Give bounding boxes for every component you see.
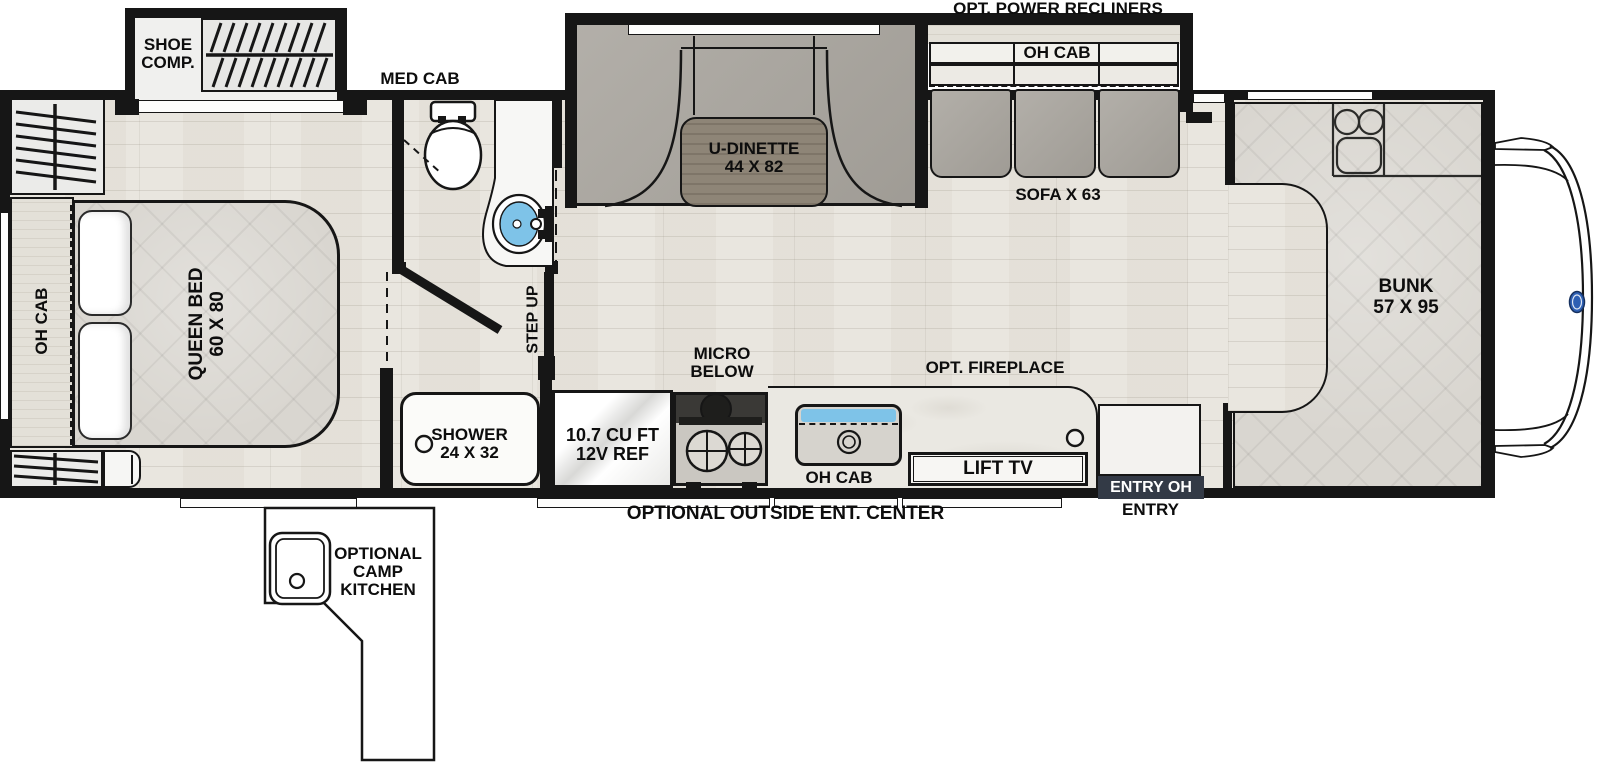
label-u-dinette: U-DINETTE 44 X 82 — [681, 140, 827, 176]
label-lift-tv: LIFT TV — [913, 456, 1083, 482]
label-kitchen-oh-cab: OH CAB — [795, 469, 883, 487]
label-bunk-name: BUNK — [1345, 277, 1467, 298]
label-shower-name: SHOWER — [412, 426, 527, 444]
label-queen-bed-size: 60 X 80 — [208, 259, 229, 389]
label-queen-bed: QUEEN BED 60 X 80 — [187, 259, 229, 389]
label-step-up: STEP UP — [524, 280, 541, 360]
label-sofa-oh-cab: OH CAB — [1017, 44, 1097, 62]
label-camp-line2: CAMP — [320, 563, 436, 581]
bath-door-leaf — [402, 270, 500, 330]
label-micro-line1: MICRO — [667, 345, 777, 363]
label-entry-oh: ENTRY OH — [1098, 479, 1204, 496]
dinette-bench-outline — [605, 36, 902, 206]
label-shower-size: 24 X 32 — [412, 444, 527, 462]
label-fridge-line2: 12V REF — [553, 445, 672, 464]
label-queen-bed-name: QUEEN BED — [187, 259, 208, 389]
label-outside-ent-center: OPTIONAL OUTSIDE ENT. CENTER — [598, 504, 973, 524]
range-burners-icon — [679, 394, 762, 489]
shoe-wardrobe-rod-icon — [206, 23, 333, 87]
label-u-dinette-size: 44 X 82 — [681, 158, 827, 176]
label-camp-kitchen: OPTIONAL CAMP KITCHEN — [320, 545, 436, 599]
label-bed-oh-cab: OH CAB — [33, 281, 51, 361]
rv-floorplan: OPT. POWER RECLINERS SHOE COMP. MED CAB … — [0, 0, 1600, 774]
kitchen-sink-drain-icon — [838, 431, 860, 453]
toilet-icon — [425, 102, 481, 189]
label-micro-line2: BELOW — [667, 363, 777, 381]
label-camp-line3: KITCHEN — [320, 581, 436, 599]
label-entry: ENTRY — [1103, 501, 1198, 519]
label-bunk-size: 57 X 95 — [1345, 298, 1467, 319]
label-sofa: SOFA X 63 — [978, 186, 1138, 204]
bedroom-wardrobe-bottom-rod-icon — [14, 453, 98, 485]
label-opt-fireplace: OPT. FIREPLACE — [900, 359, 1090, 377]
bedroom-wardrobe-top-rod-icon — [16, 104, 96, 190]
bunk-head-panel — [1333, 104, 1481, 176]
detail-overlay — [0, 0, 1600, 774]
ford-logo-icon — [1570, 292, 1585, 313]
label-shoe-comp-line2: COMP. — [134, 54, 202, 72]
label-bunk: BUNK 57 X 95 — [1345, 277, 1467, 319]
label-fridge-line1: 10.7 CU FT — [553, 426, 672, 445]
label-camp-line1: OPTIONAL — [320, 545, 436, 563]
label-shoe-comp: SHOE COMP. — [134, 36, 202, 72]
label-shower: SHOWER 24 X 32 — [412, 426, 527, 462]
label-power-recliners: OPT. POWER RECLINERS — [930, 0, 1186, 18]
label-fridge: 10.7 CU FT 12V REF — [553, 426, 672, 465]
label-u-dinette-name: U-DINETTE — [681, 140, 827, 158]
label-med-cab: MED CAB — [370, 70, 470, 88]
counter-circle-icon — [1067, 430, 1083, 446]
label-shoe-comp-line1: SHOE — [134, 36, 202, 54]
label-micro-below: MICRO BELOW — [667, 345, 777, 381]
